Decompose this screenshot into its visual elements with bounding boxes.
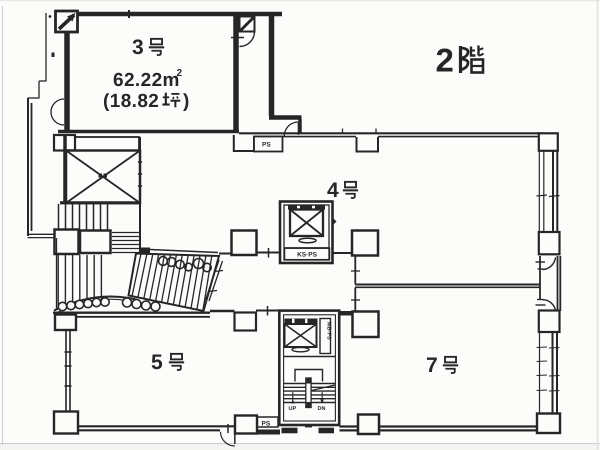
svg-text:2: 2 bbox=[436, 42, 454, 79]
svg-text:PS: PS bbox=[262, 142, 271, 149]
svg-text:PS: PS bbox=[262, 421, 271, 428]
svg-text:MB·PS: MB·PS bbox=[326, 322, 332, 340]
svg-text:): ) bbox=[183, 91, 189, 112]
svg-text:UP: UP bbox=[289, 406, 297, 412]
svg-text:62.22m: 62.22m bbox=[113, 70, 180, 91]
svg-text:5: 5 bbox=[151, 351, 163, 374]
svg-text:2: 2 bbox=[177, 68, 183, 79]
svg-text:DN: DN bbox=[318, 406, 326, 412]
svg-text:KS·PS: KS·PS bbox=[297, 252, 318, 259]
svg-text:(18.82: (18.82 bbox=[103, 91, 159, 112]
svg-text:4: 4 bbox=[327, 179, 339, 202]
svg-text:3: 3 bbox=[132, 36, 144, 59]
svg-text:7: 7 bbox=[426, 354, 438, 377]
